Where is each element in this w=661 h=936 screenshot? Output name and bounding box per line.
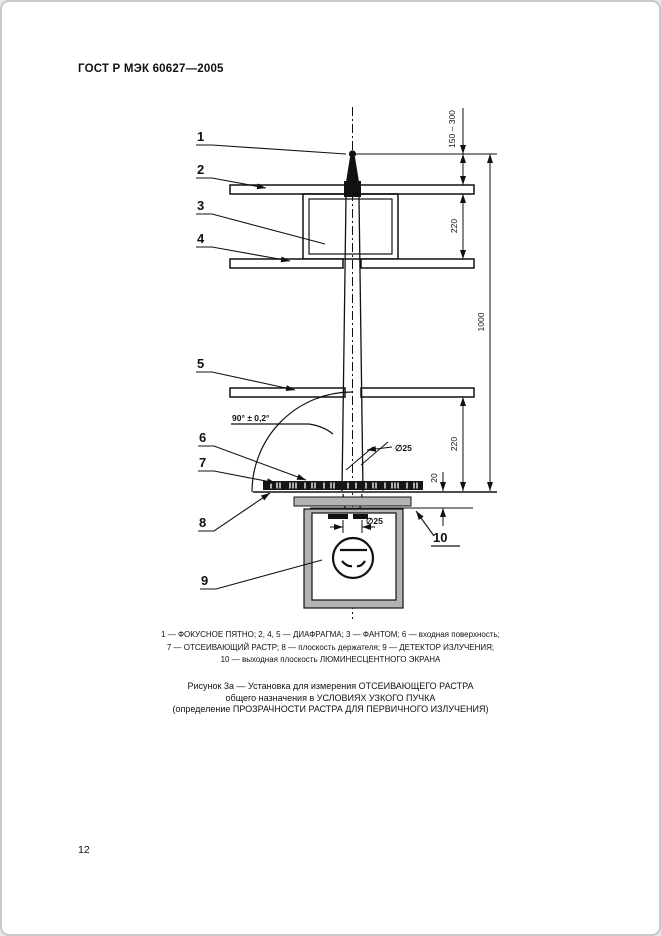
page-number: 12 [78, 844, 90, 856]
part-label-9: 9 [201, 573, 208, 588]
diaphragm-5 [230, 388, 345, 397]
part-label-4: 4 [197, 231, 205, 246]
part-label-6: 6 [199, 430, 206, 445]
caption-line-1: Рисунок 3а — Установка для измерения ОТС… [52, 681, 609, 693]
legend-line-1: 1 — ФОКУСНОЕ ПЯТНО; 2, 4, 5 — ДИАФРАГМА;… [52, 629, 609, 642]
phantom [309, 199, 392, 254]
leader-3 [196, 214, 325, 244]
part-label-1: 1 [197, 129, 204, 144]
diaphragm-5 [361, 388, 474, 397]
phantom-holder [303, 194, 398, 259]
beam-converging-core [346, 157, 359, 182]
figure-legend: 1 — ФОКУСНОЕ ПЯТНО; 2, 4, 5 — ДИАФРАГМА;… [52, 629, 609, 667]
beam-aperture-spot [344, 181, 361, 197]
leader-7 [198, 471, 276, 483]
leader-6 [198, 446, 306, 480]
leader-10 [416, 511, 434, 536]
leader-1 [196, 145, 346, 154]
caption-line-3: (определение ПРОЗРАЧНОСТИ РАСТРА ДЛЯ ПЕР… [52, 704, 609, 716]
caption-line-2: общего назначения в УСЛОВИЯХ УЗКОГО ПУЧК… [52, 693, 609, 705]
leader-8 [198, 493, 270, 531]
document-page: ГОСТ Р МЭК 60627—2005 [0, 0, 661, 936]
detector-flange [294, 497, 411, 506]
beam-edge-right [359, 197, 363, 491]
anti-scatter-grid [263, 481, 423, 490]
part-label-8: 8 [199, 515, 206, 530]
beam-edge-left [342, 197, 346, 491]
dim-220-bottom-label: 220 [449, 437, 459, 451]
radiation-detector-cavity [312, 513, 396, 600]
figure-caption: Рисунок 3а — Установка для измерения ОТС… [52, 681, 609, 716]
dim-20-label: 20 [429, 473, 439, 483]
beam-diameter-screen-label: ∅25 [366, 516, 383, 526]
figure-3a-diagram: ∅25 90° ± 0,2° ∅25 150 – 300 220 220 100… [2, 2, 659, 936]
dim-220-top-label: 220 [449, 219, 459, 233]
dim-1000-label: 1000 [476, 312, 486, 331]
luminescent-screen [328, 514, 348, 519]
grid-angle-label: 90° ± 0,2° [232, 413, 270, 423]
part-label-10: 10 [433, 530, 447, 545]
part-label-3: 3 [197, 198, 204, 213]
part-label-5: 5 [197, 356, 204, 371]
beam-diameter-grid-label: ∅25 [395, 443, 412, 453]
part-label-2: 2 [197, 162, 204, 177]
legend-line-3: 10 — выходная плоскость ЛЮМИНЕСЦЕНТНОГО … [52, 654, 609, 667]
grid-angle-leader [309, 424, 333, 434]
dim-150-300-label: 150 – 300 [447, 110, 457, 148]
legend-line-2: 7 — ОТСЕИВАЮЩИЙ РАСТР; 8 — плоскость дер… [52, 642, 609, 655]
diaphragm-4 [361, 259, 474, 268]
angle-arc [252, 392, 353, 492]
part-label-7: 7 [199, 455, 206, 470]
